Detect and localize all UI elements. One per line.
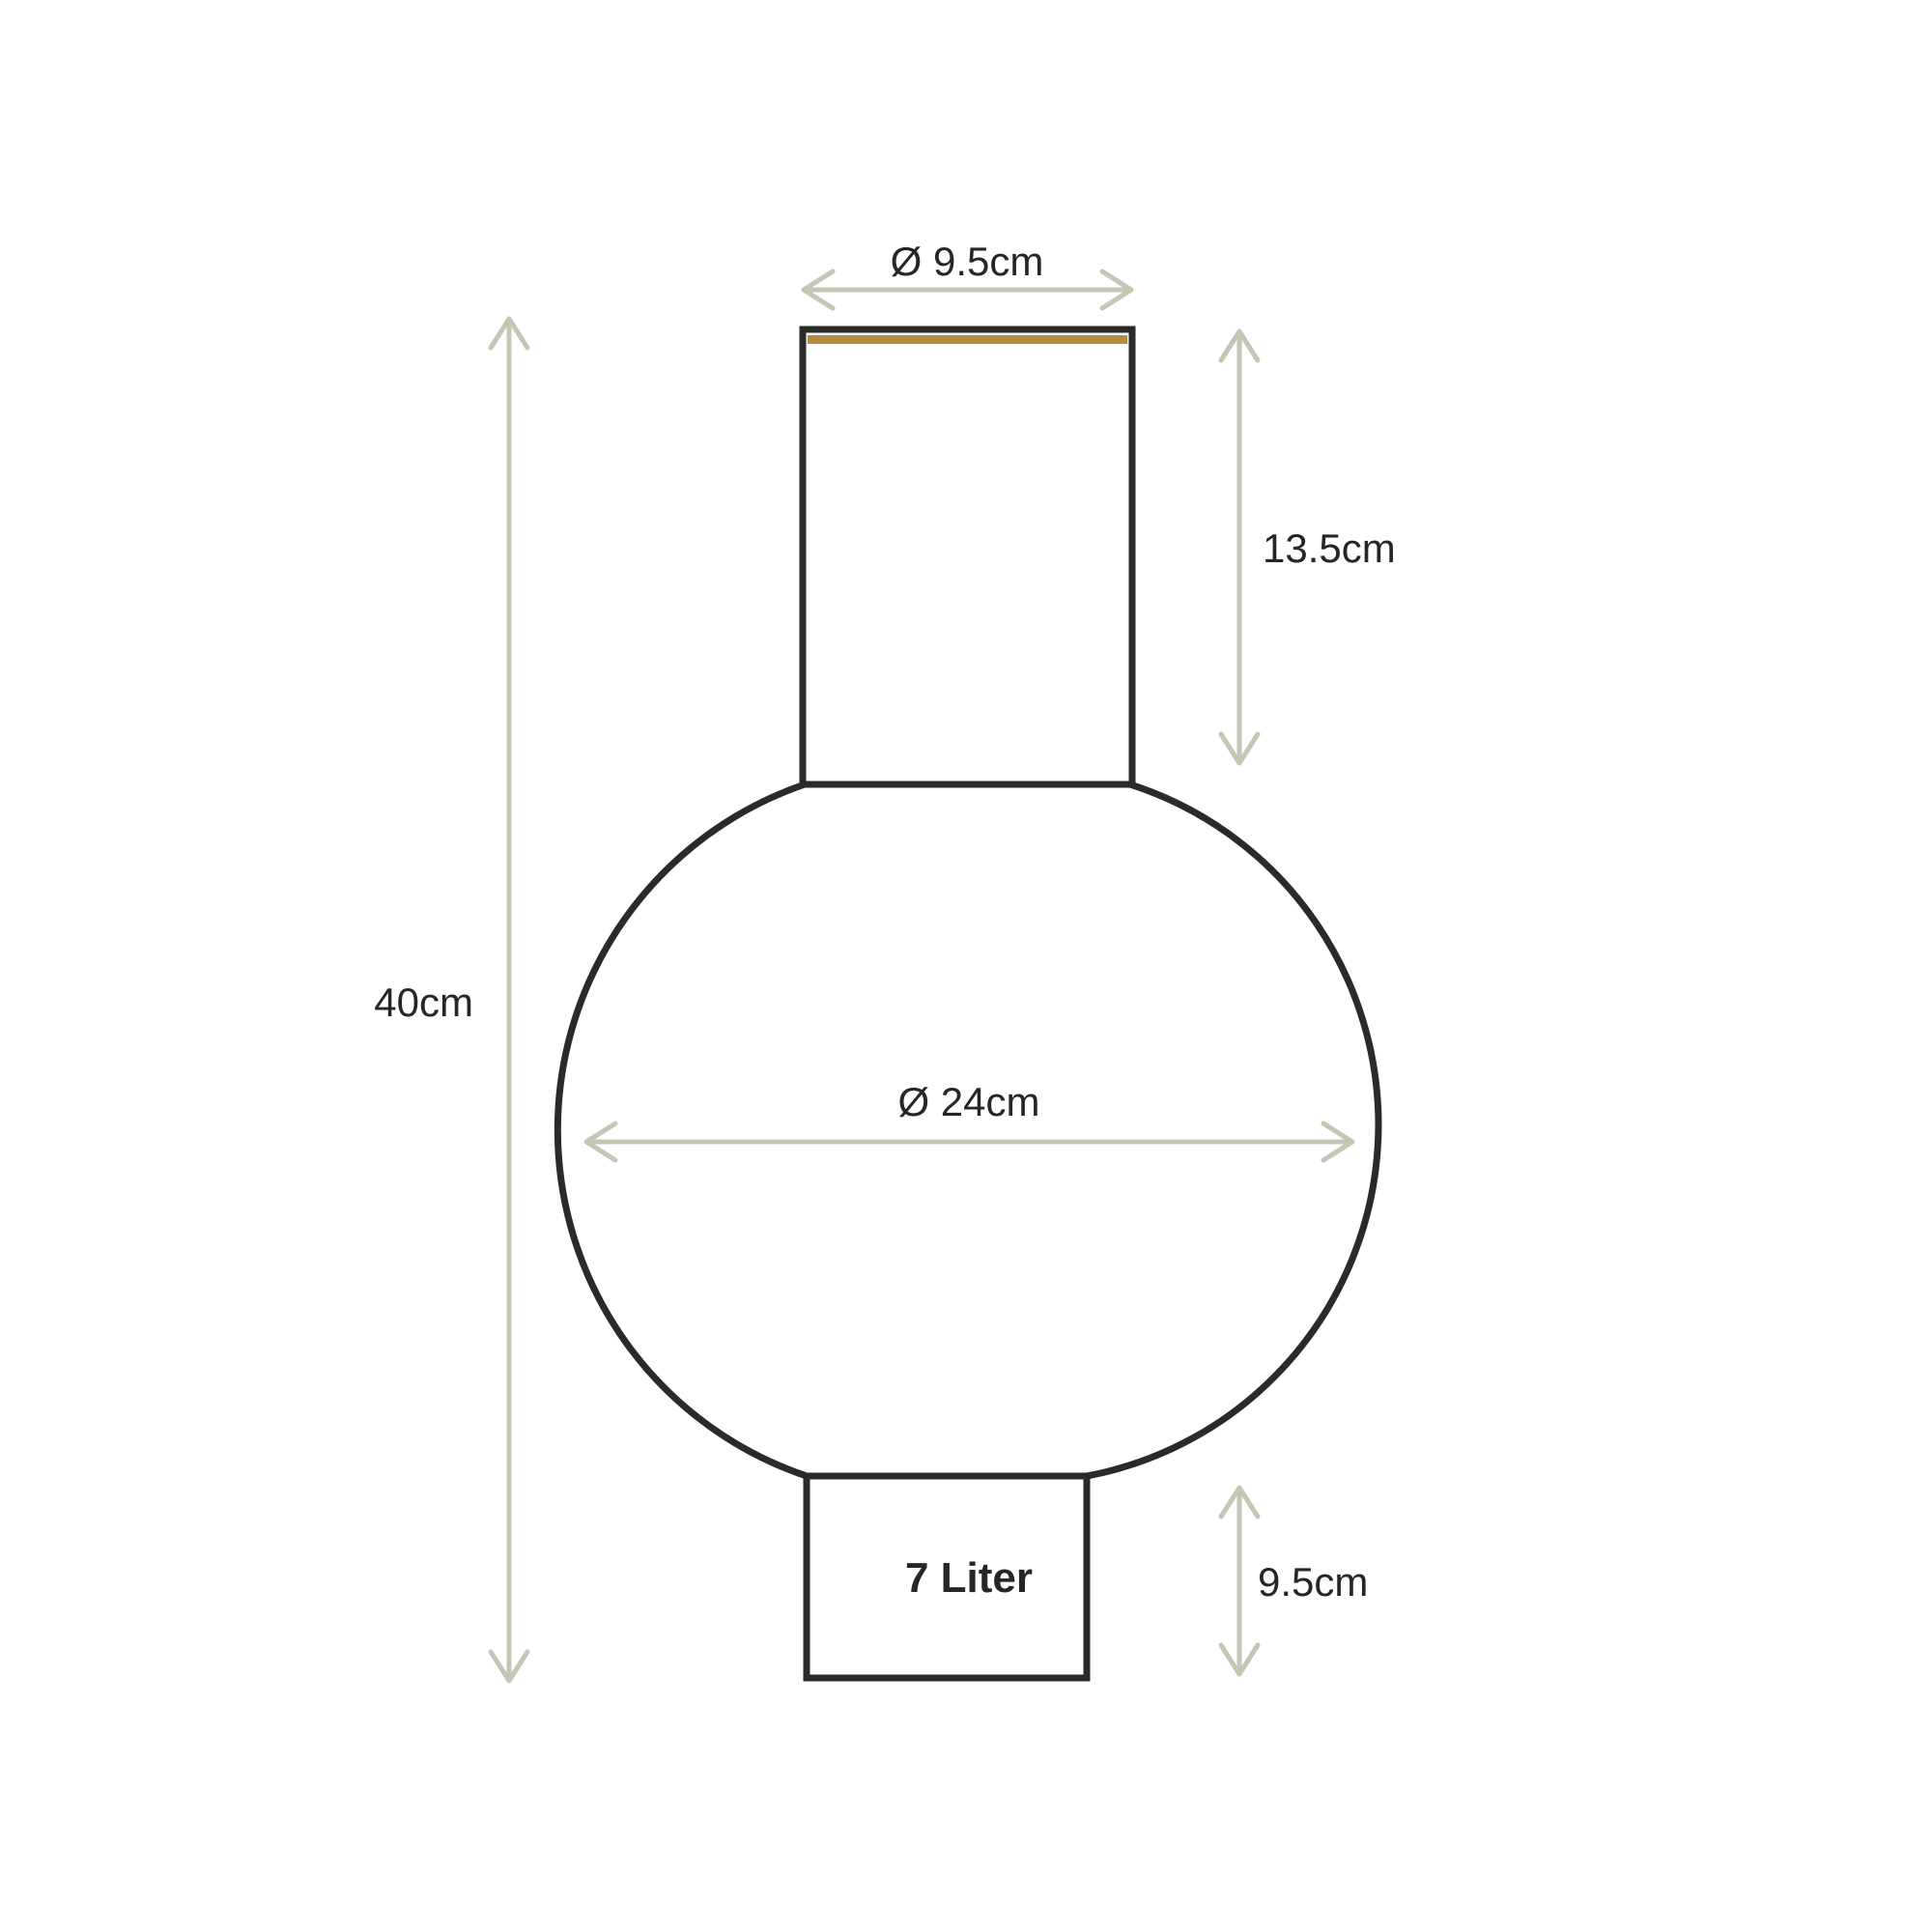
arrow-body-diameter (586, 1123, 1352, 1160)
label-body-diameter: Ø 24cm (897, 1079, 1039, 1124)
label-neck-height: 13.5cm (1263, 526, 1396, 571)
arrow-total-height (491, 319, 527, 1681)
vase-outline (557, 329, 1378, 1678)
dimension-labels: Ø 9.5cm 13.5cm 40cm Ø 24cm 7 Liter 9.5cm (374, 239, 1395, 1605)
vase-dimension-diagram: Ø 9.5cm 13.5cm 40cm Ø 24cm 7 Liter 9.5cm (0, 0, 1932, 1932)
arrow-base-height (1221, 1488, 1258, 1674)
vase-body (557, 784, 1378, 1476)
vase-neck (803, 329, 1132, 784)
dimension-arrows (491, 271, 1352, 1681)
diagram-canvas: Ø 9.5cm 13.5cm 40cm Ø 24cm 7 Liter 9.5cm (0, 0, 1932, 1932)
arrow-neck-height (1221, 331, 1258, 763)
label-capacity: 7 Liter (905, 1554, 1033, 1602)
label-total-height: 40cm (374, 980, 473, 1025)
label-base-height: 9.5cm (1258, 1559, 1368, 1605)
label-top-diameter: Ø 9.5cm (891, 239, 1044, 284)
